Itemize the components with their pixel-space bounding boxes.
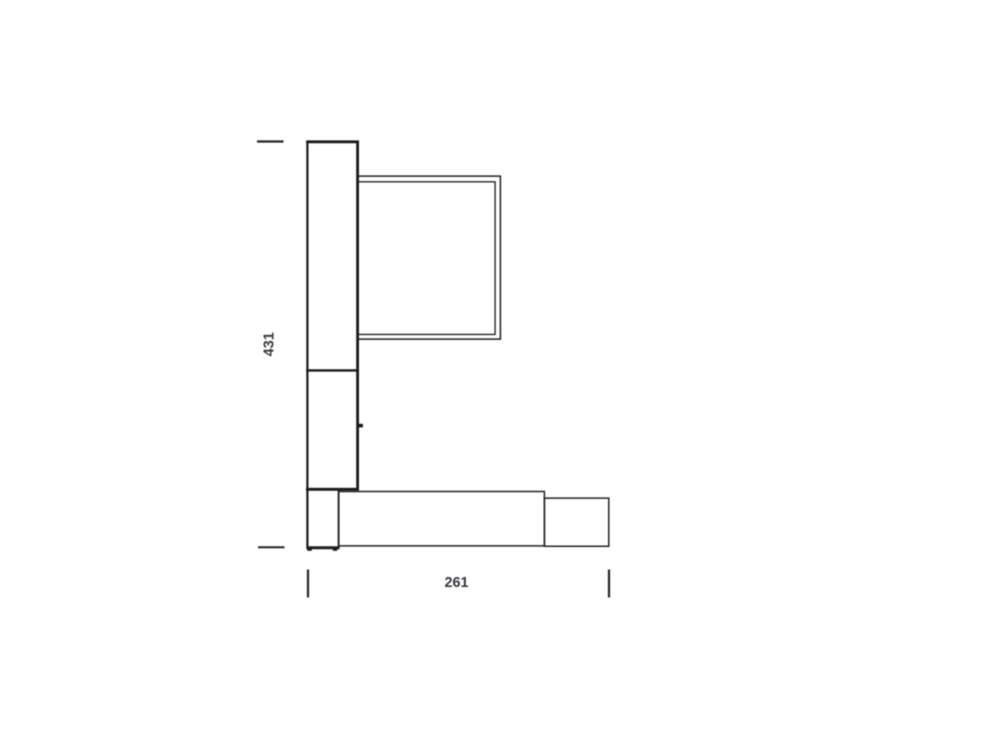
svg-text:431: 431 [262,332,278,356]
svg-text:261: 261 [444,575,468,591]
